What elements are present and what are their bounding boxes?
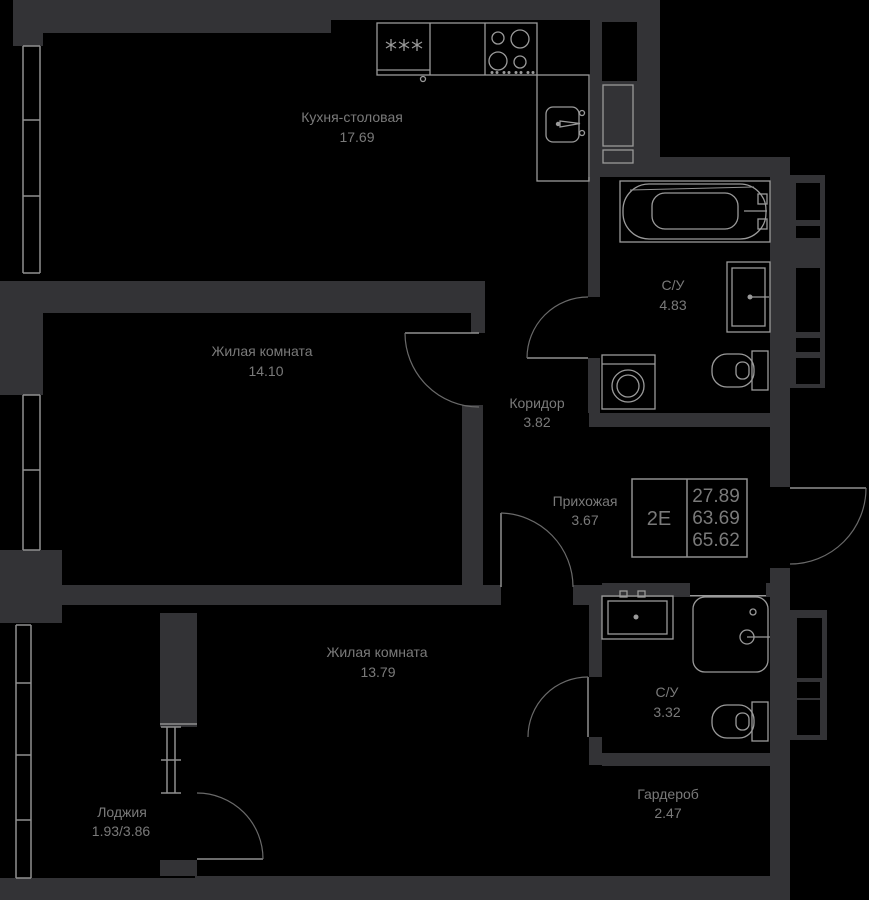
stove <box>489 30 535 74</box>
wall-segment <box>62 585 501 605</box>
room-label-living-1: Жилая комната <box>211 343 312 359</box>
wall-segment <box>462 405 483 605</box>
shower-drain <box>750 609 756 615</box>
room-labels: Кухня-столовая 17.69 Жилая комната 14.10… <box>92 109 699 839</box>
kitchen-counter <box>377 23 537 75</box>
burner <box>489 52 507 70</box>
shower <box>693 597 770 672</box>
doors <box>197 297 866 859</box>
wall-segment <box>602 583 690 597</box>
bathtub <box>620 181 770 242</box>
room-area-corridor: 3.82 <box>523 414 550 430</box>
sink-tap <box>580 111 585 116</box>
duct-opening <box>602 22 637 81</box>
niche <box>796 338 820 352</box>
wall-segment <box>0 281 485 313</box>
door-swing-arc <box>197 793 263 859</box>
room-area-wardrobe: 2.47 <box>654 805 681 821</box>
burner <box>514 56 526 68</box>
wall-segment <box>660 157 790 177</box>
burner <box>511 30 529 48</box>
toilet-1 <box>712 351 768 390</box>
room-label-wardrobe: Гардероб <box>637 786 699 802</box>
niche <box>797 700 820 735</box>
bathroom-1-fixtures <box>602 181 770 409</box>
window-loggia <box>16 625 31 878</box>
windows <box>16 46 197 878</box>
wall-segment <box>0 296 43 395</box>
bathtub-tap <box>758 194 767 204</box>
door-entrance <box>790 488 866 564</box>
washing-machine <box>602 355 655 409</box>
room-label-corridor: Коридор <box>509 395 565 411</box>
door-living-room-2 <box>501 513 573 587</box>
door-swing-arc <box>527 297 588 358</box>
unit-area-main: 63.69 <box>692 508 740 529</box>
room-label-kitchen: Кухня-столовая <box>301 109 403 125</box>
sink-tap <box>580 131 585 136</box>
door-balcony <box>197 793 263 859</box>
niche <box>796 268 820 332</box>
wall-segment <box>770 157 790 487</box>
wall-segment <box>160 613 197 727</box>
bathroom-2-fixtures <box>602 591 770 741</box>
shower-tray <box>693 597 768 672</box>
washbasin-drain <box>634 615 639 620</box>
niche <box>796 226 820 238</box>
burner <box>492 32 504 44</box>
door-swing-arc <box>501 513 573 587</box>
toilet-bowl <box>712 705 754 738</box>
washing-machine-body <box>602 355 655 409</box>
walls <box>0 0 827 900</box>
door-swing-arc <box>790 488 866 564</box>
wall-segment <box>13 0 43 46</box>
room-area-bathroom-1: 4.83 <box>659 297 686 313</box>
toilet-2 <box>712 702 768 741</box>
bathtub-tap <box>758 219 767 229</box>
room-label-living-2: Жилая комната <box>326 644 427 660</box>
window-balcony-block <box>160 724 197 793</box>
room-area-living-2: 13.79 <box>360 664 395 680</box>
wall-segment <box>195 876 790 900</box>
door-bathroom-1 <box>527 297 588 358</box>
toilet-seat <box>736 362 749 379</box>
unit-info-table: 2Е 27.89 63.69 65.62 <box>632 479 747 557</box>
room-label-loggia: Лоджия <box>97 804 147 820</box>
freezer-stars-icon <box>386 39 422 51</box>
unit-type-label: 2Е <box>647 508 671 530</box>
window-living-room-1 <box>23 395 40 550</box>
fridge-handle <box>421 77 426 82</box>
room-area-bathroom-2: 3.32 <box>653 704 680 720</box>
bathtub-waterline <box>630 187 754 190</box>
kitchen-counter-side <box>537 75 589 181</box>
unit-area-living: 27.89 <box>692 486 740 507</box>
washing-machine-drum-inner <box>617 375 639 397</box>
wall-segment <box>588 177 600 297</box>
wall-segment <box>589 585 602 677</box>
wall-segment <box>0 878 195 900</box>
wall-segment <box>160 860 197 876</box>
toilet-bowl <box>712 354 754 387</box>
niche <box>797 682 820 698</box>
door-swing-arc <box>528 677 588 737</box>
wall-segment <box>13 0 331 33</box>
room-area-kitchen: 17.69 <box>339 129 374 145</box>
room-area-living-1: 14.10 <box>248 363 283 379</box>
bathtub-basin <box>652 193 738 229</box>
wall-segment <box>602 753 770 766</box>
unit-area-total: 65.62 <box>692 530 740 551</box>
kitchen-sink <box>546 107 585 142</box>
floor-plan-svg: 2Е 27.89 63.69 65.62 Кухня-столовая 17.6… <box>0 0 869 900</box>
duct-notch-edge <box>690 595 766 597</box>
washbasin-1 <box>727 262 770 332</box>
washbasin-2 <box>602 591 673 639</box>
toilet-seat <box>736 713 749 730</box>
wall-segment <box>766 583 770 597</box>
niche <box>797 618 822 678</box>
counter-dividers <box>430 23 485 75</box>
sink-faucet-icon <box>560 121 580 127</box>
door-living-room-1 <box>405 333 479 407</box>
stove-knobs <box>491 71 535 74</box>
wall-segment <box>331 0 590 20</box>
wall-segment <box>589 737 602 765</box>
room-area-loggia: 1.93/3.86 <box>92 823 151 839</box>
floor-plan: 2Е 27.89 63.69 65.62 Кухня-столовая 17.6… <box>0 0 869 900</box>
door-bathroom-2 <box>528 677 588 737</box>
room-label-hallway: Прихожая <box>553 493 618 509</box>
room-label-bathroom-2: С/У <box>656 684 679 700</box>
wall-segment <box>0 550 62 623</box>
niche <box>796 183 820 220</box>
wall-segment <box>770 568 790 876</box>
room-area-hallway: 3.67 <box>571 512 598 528</box>
room-label-bathroom-1: С/У <box>662 277 685 293</box>
niche <box>796 358 820 384</box>
door-swing-arc <box>405 333 479 407</box>
wall-segment <box>588 358 600 413</box>
kitchen-fixtures <box>377 23 589 181</box>
window-kitchen <box>23 46 40 273</box>
wall-segment <box>589 413 770 427</box>
wall-segment <box>471 313 485 333</box>
duct-notch <box>690 583 766 595</box>
